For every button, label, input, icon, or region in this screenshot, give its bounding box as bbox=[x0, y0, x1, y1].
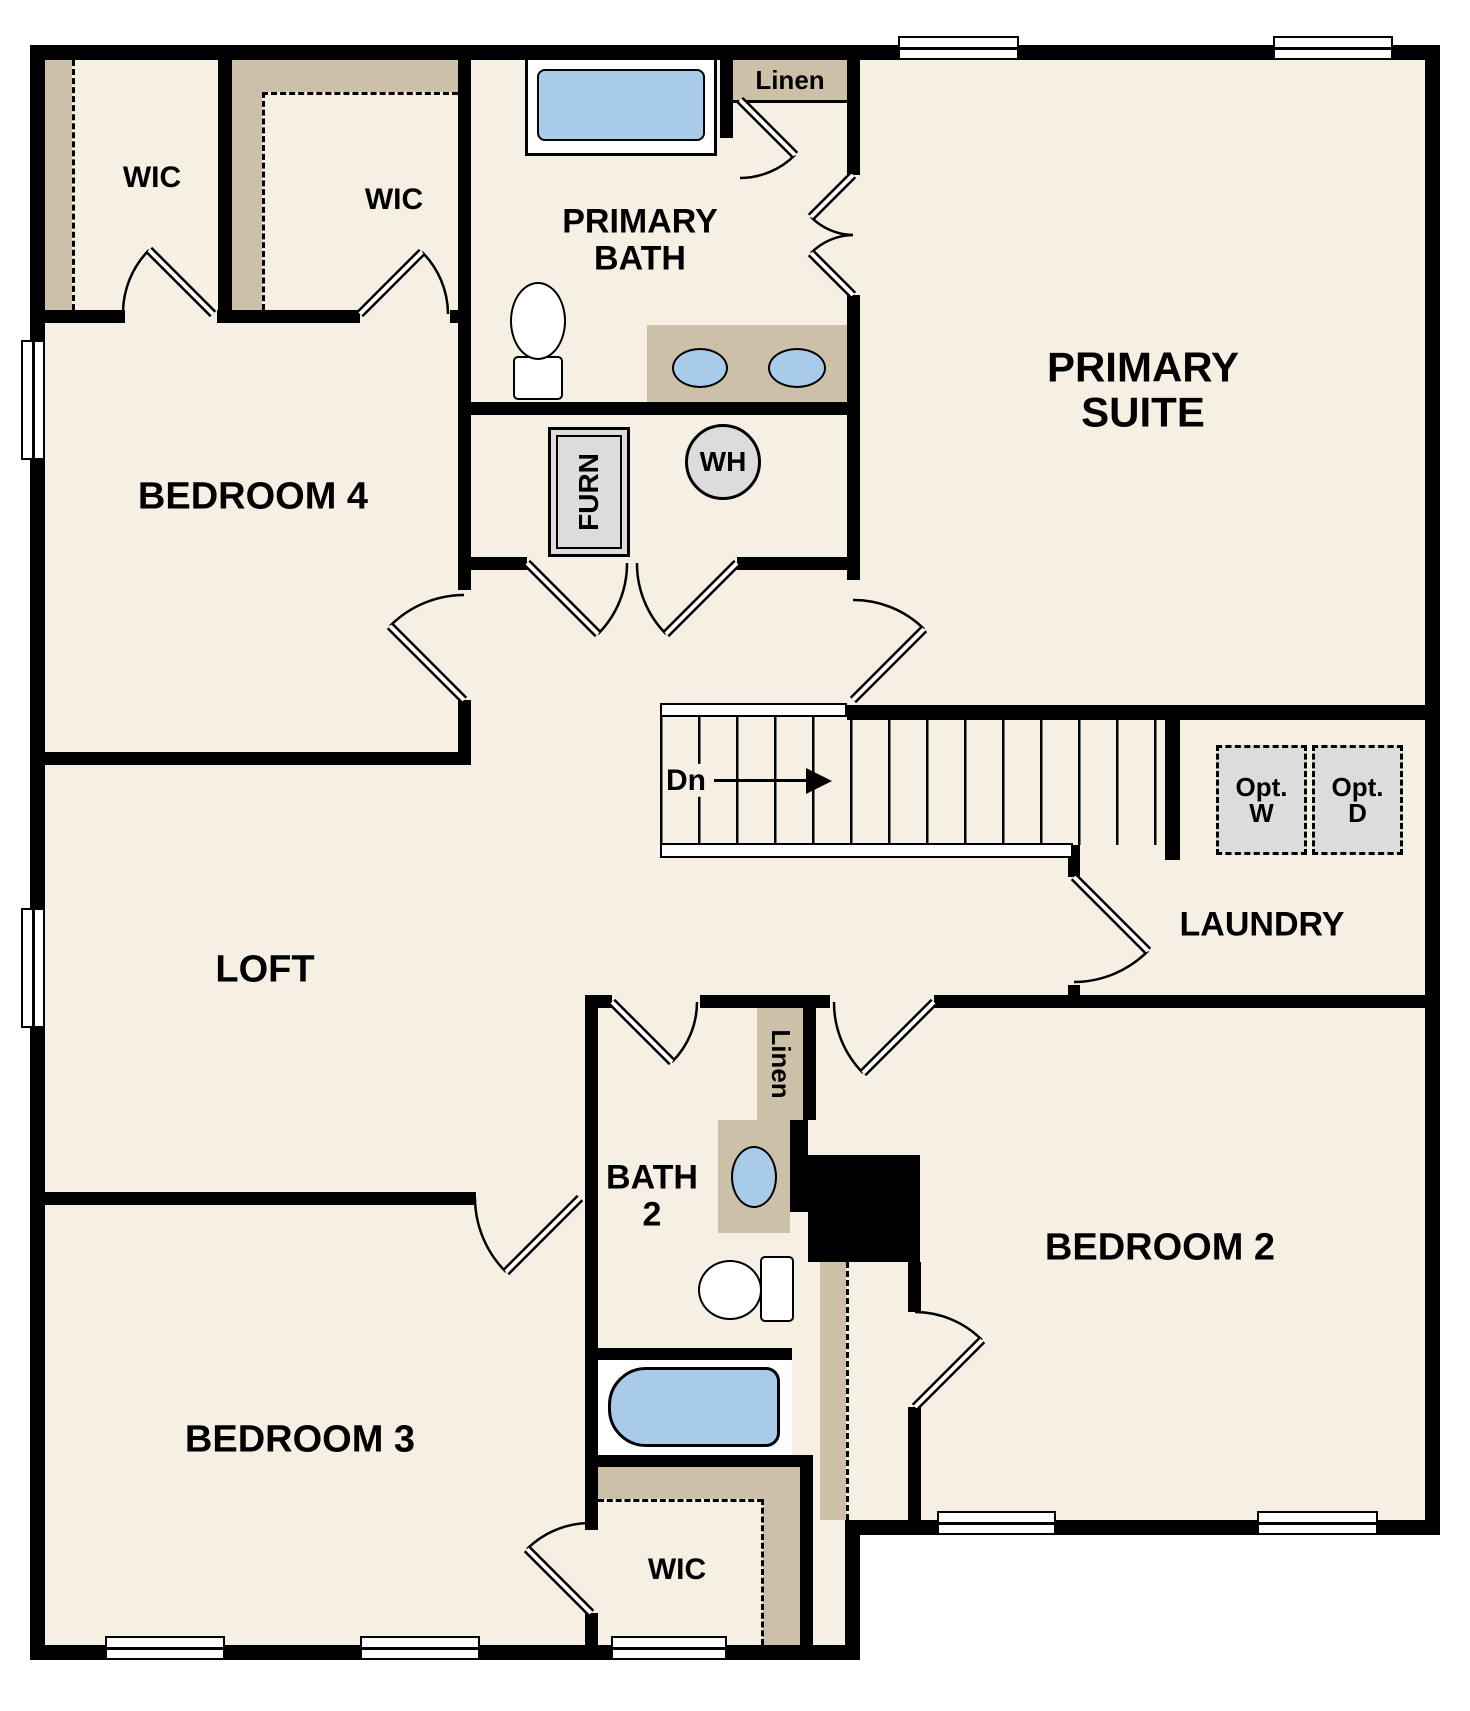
wall-tub-top bbox=[585, 1348, 792, 1360]
tub bbox=[608, 1367, 780, 1447]
wall-bedroom3-top bbox=[30, 1192, 476, 1205]
furnace-label: FURN bbox=[573, 453, 605, 531]
wall-wic-divider bbox=[218, 60, 232, 312]
window-bedroom2-1 bbox=[937, 1511, 1056, 1535]
opt-washer-line1: Opt. bbox=[1236, 774, 1288, 800]
window-bedroom3-2 bbox=[360, 1636, 480, 1660]
shower-surround bbox=[525, 57, 717, 156]
opt-washer: Opt. W bbox=[1216, 745, 1307, 855]
opt-dryer-line1: Opt. bbox=[1332, 774, 1384, 800]
toilet-primary-tank bbox=[513, 356, 563, 400]
wall-exterior-left bbox=[30, 45, 45, 1660]
window-loft bbox=[21, 908, 45, 1028]
wall-closet2-right-upper bbox=[908, 1262, 921, 1312]
opt-dryer-line2: D bbox=[1348, 800, 1367, 826]
stairs-rail-top bbox=[660, 703, 847, 717]
toilet-primary-bowl bbox=[510, 282, 566, 360]
wall-closet-bottom-b bbox=[217, 310, 360, 323]
wic2-shelf-line-h bbox=[262, 92, 458, 95]
stairs-down-label: Dn bbox=[663, 765, 709, 797]
water-heater-label: WH bbox=[700, 446, 747, 478]
room-label-wic1: WIC bbox=[123, 162, 181, 194]
bedroom2-closet-line bbox=[846, 1262, 849, 1520]
wall-linen-stub bbox=[720, 60, 733, 138]
opt-dryer: Opt. D bbox=[1312, 745, 1403, 855]
sink-primary-left bbox=[672, 348, 728, 388]
wall-bath2-left-upper bbox=[585, 995, 598, 1530]
wall-bedroom4-bottom bbox=[30, 752, 471, 765]
wall-exterior-right bbox=[1425, 45, 1440, 1535]
closet-label-linen-top: Linen bbox=[755, 66, 824, 94]
wall-closet2-right-lower bbox=[908, 1407, 921, 1520]
window-bedroom3-1 bbox=[105, 1636, 225, 1660]
room-label-wic3: WIC bbox=[648, 1554, 706, 1586]
bedroom2-closet-shelf bbox=[820, 1262, 846, 1520]
room-label-primary-suite: PRIMARYSUITE bbox=[1047, 345, 1239, 436]
wall-vanity2-right bbox=[790, 1120, 808, 1212]
shower bbox=[537, 69, 705, 141]
window-bedroom2-2 bbox=[1257, 1511, 1378, 1535]
wic2-shelf-top bbox=[232, 60, 458, 92]
wall-bedroom4-right-upper bbox=[458, 310, 471, 590]
window-wic3 bbox=[611, 1636, 727, 1660]
window-suite-1 bbox=[898, 36, 1019, 60]
wic2-shelf-left bbox=[232, 92, 262, 310]
closet-label-linen-bath2: Linen bbox=[767, 1029, 795, 1098]
room-label-loft: LOFT bbox=[215, 949, 314, 990]
room-label-wic2: WIC bbox=[365, 184, 423, 216]
wall-hall-d bbox=[934, 995, 1440, 1008]
wall-hall-b bbox=[700, 995, 830, 1008]
wic3-shelf-top bbox=[598, 1467, 800, 1499]
toilet-bath2-bowl bbox=[698, 1260, 762, 1320]
opt-washer-line2: W bbox=[1249, 800, 1274, 826]
wic3-shelf-line-v bbox=[761, 1499, 764, 1645]
wic3-shelf-line-h bbox=[598, 1499, 763, 1502]
wall-suite-left-upper bbox=[847, 60, 860, 175]
wall-furn-bottom-right bbox=[737, 557, 860, 570]
wall-stair-right bbox=[1165, 705, 1180, 860]
room-label-bedroom3: BEDROOM 3 bbox=[185, 1419, 415, 1460]
wall-exterior-step bbox=[845, 1520, 860, 1660]
sink-bath2 bbox=[731, 1146, 777, 1208]
room-label-laundry: LAUNDRY bbox=[1180, 907, 1345, 944]
water-heater: WH bbox=[685, 424, 761, 500]
floor-plan: Dn FURN WH Opt. W Opt. D bbox=[0, 0, 1470, 1711]
wic2-shelf-line-v bbox=[262, 92, 265, 310]
room-label-primary-bath: PRIMARYBATH bbox=[562, 203, 718, 276]
wall-chase-block bbox=[808, 1155, 920, 1262]
furnace-inner: FURN bbox=[556, 435, 622, 549]
wic3-shelf-right bbox=[763, 1499, 800, 1645]
wic1-shelf-line bbox=[72, 60, 75, 310]
tub-surround bbox=[598, 1360, 792, 1455]
wall-linen2-right bbox=[803, 1008, 816, 1120]
wall-tub-bottom bbox=[585, 1455, 813, 1467]
furnace: FURN bbox=[548, 427, 630, 557]
stairs-rail-bottom bbox=[660, 843, 1073, 858]
wic1-shelf bbox=[45, 60, 72, 310]
wall-bath2-left-lower bbox=[585, 1613, 598, 1658]
window-suite-2 bbox=[1273, 36, 1393, 60]
wall-suite-left-mid bbox=[847, 295, 860, 580]
room-label-bedroom4: BEDROOM 4 bbox=[138, 476, 368, 517]
wall-bath-bottom bbox=[458, 402, 860, 415]
stairs-arrow-line bbox=[714, 779, 810, 782]
wall-bath-left bbox=[458, 60, 471, 310]
wall-exterior-top bbox=[30, 45, 1440, 60]
wall-closet-bottom-a bbox=[30, 310, 125, 323]
wall-wic3-right bbox=[800, 1455, 813, 1660]
wall-furn-bottom-left bbox=[458, 557, 527, 570]
toilet-bath2-tank bbox=[760, 1256, 794, 1322]
sink-primary-right bbox=[768, 348, 826, 388]
window-bedroom4 bbox=[21, 340, 45, 460]
room-label-bath2: BATH2 bbox=[606, 1159, 698, 1232]
room-label-bedroom2: BEDROOM 2 bbox=[1045, 1227, 1275, 1268]
stairs-arrow-head bbox=[806, 768, 832, 794]
